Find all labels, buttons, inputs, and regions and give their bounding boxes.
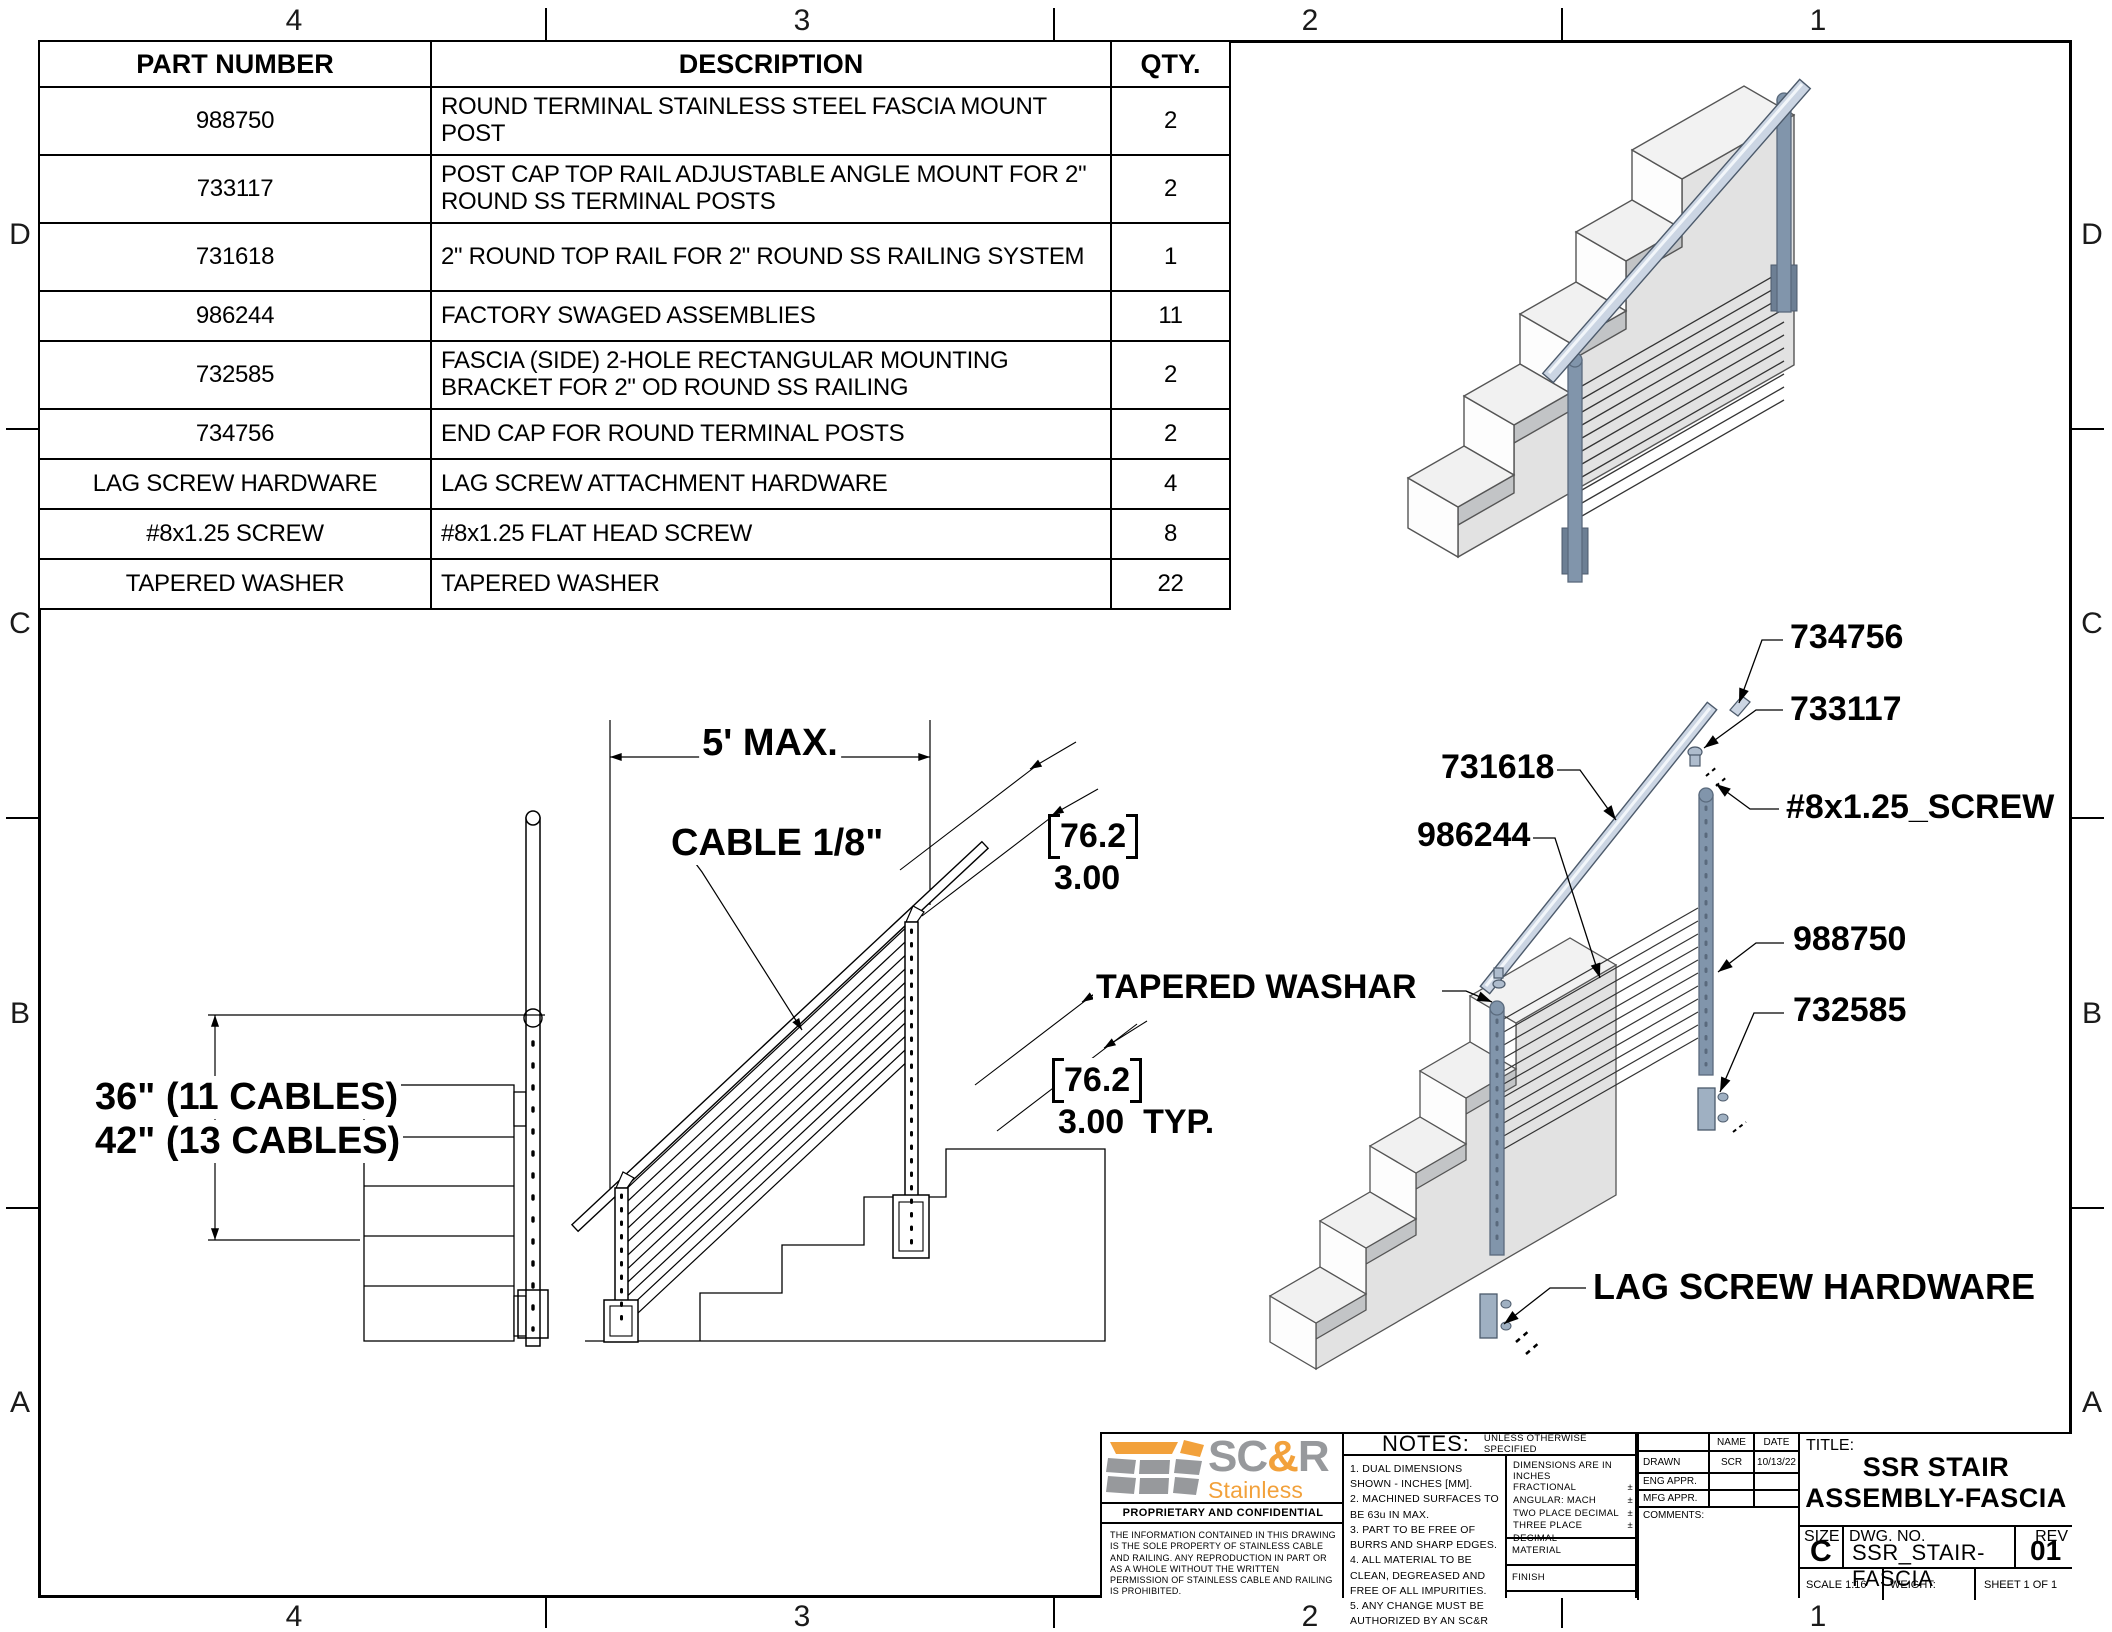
zone-tick (2072, 428, 2104, 430)
callout-screw: #8x1.25_SCREW (1783, 788, 2057, 827)
qty-cell: 2 (1111, 409, 1230, 459)
zone-letter-right-A: A (2082, 1386, 2102, 1420)
drawn-date: 10/13/22 (1757, 1457, 1796, 1468)
span-dim-text: 5' MAX. (699, 722, 841, 765)
description-cell: ROUND TERMINAL STAINLESS STEEL FASCIA MO… (431, 87, 1111, 155)
zone-number-bottom-2: 2 (1302, 1600, 1319, 1632)
drawing-sheet: 4 3 2 1 4 3 2 1 D C B A D C B A PART NUM… (0, 0, 2112, 1632)
qty-cell: 2 (1111, 87, 1230, 155)
callout-end-cap: 734756 (1787, 618, 1906, 657)
size-cell: SIZE C (1800, 1527, 1842, 1567)
qty-cell: 4 (1111, 459, 1230, 509)
zone-letter-right-D: D (2081, 218, 2103, 252)
description-cell: TAPERED WASHER (431, 559, 1111, 609)
zone-tick (6, 817, 38, 819)
zone-number-top-4: 4 (286, 4, 303, 38)
finish-label: FINISH (1512, 1572, 1545, 1583)
plus-minus: ± (1627, 1495, 1633, 1508)
stair-elevation-view (430, 690, 1240, 1380)
table-row: 986244 FACTORY SWAGED ASSEMBLIES 11 (39, 291, 1230, 341)
part-number-cell: LAG SCREW HARDWARE (39, 459, 431, 509)
zone-letter-right-C: C (2081, 607, 2103, 641)
col-header-qty: QTY. (1111, 41, 1230, 87)
notes-list: 1. DUAL DIMENSIONS SHOWN - INCHES [MM]. … (1344, 1456, 1505, 1598)
mfg-appr-label: MFG APPR. (1643, 1493, 1697, 1504)
stair-profile (585, 1149, 1105, 1341)
rev-cell: REV 01 (2014, 1527, 2074, 1567)
note-item: 3. PART TO BE FREE OF BURRS AND SHARP ED… (1350, 1523, 1501, 1553)
table-row: 733117 POST CAP TOP RAIL ADJUSTABLE ANGL… (39, 155, 1230, 223)
callout-tapered-washer: TAPERED WASHAR (1093, 968, 1420, 1007)
table-row: 988750 ROUND TERMINAL STAINLESS STEEL FA… (39, 87, 1230, 155)
drawing-title-line2: ASSEMBLY-FASCIA (1800, 1483, 2072, 1514)
drawing-title-line1: SSR STAIR (1800, 1452, 2072, 1483)
top-rail-elevation (572, 842, 988, 1232)
part-number-cell: 734756 (39, 409, 431, 459)
parts-table: PART NUMBER DESCRIPTION QTY. 988750 ROUN… (38, 40, 1231, 610)
dim-inch-value: 3.00 (1048, 859, 1138, 898)
callout-post: 988750 (1790, 920, 1909, 959)
table-row: 731618 2" ROUND TOP RAIL FOR 2" ROUND SS… (39, 223, 1230, 291)
notes-heading: NOTES: (1382, 1431, 1470, 1457)
finish-cell: FINISH (1507, 1564, 1637, 1590)
callout-cable-assembly: 986244 (1414, 816, 1533, 855)
material-label: MATERIAL (1512, 1545, 1561, 1556)
zone-tick (1053, 1596, 1055, 1628)
dim-mm-value: 76.2 (1052, 1058, 1142, 1103)
part-number-cell: 986244 (39, 291, 431, 341)
scale-value: SCALE 1:16 (1806, 1579, 1867, 1591)
approvals-grid: NAME DATE DRAWN SCR 10/13/22 ENG APPR. M… (1637, 1432, 1798, 1598)
description-cell: 2" ROUND TOP RAIL FOR 2" ROUND SS RAILIN… (431, 223, 1111, 291)
proprietary-cell: PROPRIETARY AND CONFIDENTIAL (1100, 1502, 1344, 1524)
tolerance-heading: DIMENSIONS ARE IN INCHES (1513, 1460, 1633, 1482)
legal-cell: THE INFORMATION CONTAINED IN THIS DRAWIN… (1100, 1522, 1344, 1598)
weight-label: WEIGHT: (1890, 1579, 1936, 1591)
comments-label: COMMENTS: (1643, 1510, 1704, 1521)
description-cell: FASCIA (SIDE) 2-HOLE RECTANGULAR MOUNTIN… (431, 341, 1111, 409)
zone-tick (6, 428, 38, 430)
zone-tick (545, 8, 547, 40)
zone-number-top-1: 1 (1810, 4, 1827, 38)
material-cell: MATERIAL (1507, 1537, 1637, 1564)
part-number-cell: 988750 (39, 87, 431, 155)
callout-top-rail: 731618 (1438, 748, 1557, 787)
note-item: 5. ANY CHANGE MUST BE AUTHORIZED BY AN S… (1350, 1599, 1501, 1632)
zone-letter-left-C: C (9, 607, 31, 641)
elevation-posts (604, 906, 929, 1342)
dim-mm-value: 76.2 (1048, 814, 1138, 859)
cable-size-label: CABLE 1/8" (668, 822, 886, 865)
description-cell: #8x1.25 FLAT HEAD SCREW (431, 509, 1111, 559)
span-dimension (610, 720, 930, 1190)
drawn-name: SCR (1721, 1457, 1742, 1468)
zone-number-bottom-4: 4 (286, 1600, 303, 1632)
brand-r: R (1298, 1432, 1329, 1481)
scale-cell: SCALE 1:16 (1800, 1569, 1882, 1600)
qty-cell: 11 (1111, 291, 1230, 341)
notes-cell: NOTES: UNLESS OTHERWISE SPECIFIED 1. DUA… (1342, 1432, 1637, 1598)
part-number-cell: TAPERED WASHER (39, 559, 431, 609)
table-row: #8x1.25 SCREW #8x1.25 FLAT HEAD SCREW 8 (39, 509, 1230, 559)
logo-cell: SC&R Stainless Cable & Railing (1100, 1432, 1344, 1504)
description-cell: FACTORY SWAGED ASSEMBLIES (431, 291, 1111, 341)
cable-count-dim-36: 36" (11 CABLES) (92, 1076, 401, 1119)
notes-qualifier: UNLESS OTHERWISE SPECIFIED (1484, 1433, 1635, 1455)
note-item: 1. DUAL DIMENSIONS SHOWN - INCHES [MM]. (1350, 1462, 1501, 1492)
isometric-assembly-view (1290, 60, 1930, 630)
dwg-no-cell: DWG. NO. SSR_STAIR-FASCIA (1842, 1527, 2014, 1567)
note-item: 4. ALL MATERIAL TO BE CLEAN, DEGREASED A… (1350, 1553, 1501, 1599)
zone-tick (6, 1207, 38, 1209)
brand-sc: SC (1208, 1432, 1267, 1481)
date-header: DATE (1764, 1437, 1790, 1448)
plus-minus: ± (1627, 1482, 1633, 1495)
table-row: TAPERED WASHER TAPERED WASHER 22 (39, 559, 1230, 609)
col-header-description: DESCRIPTION (431, 41, 1111, 87)
qty-cell: 8 (1111, 509, 1230, 559)
rev-value: 01 (2030, 1535, 2061, 1567)
zone-letter-left-D: D (9, 218, 31, 252)
tol-label: FRACTIONAL (1513, 1482, 1576, 1495)
zone-letter-left-B: B (10, 997, 30, 1031)
size-value: C (1810, 1535, 1832, 1569)
description-cell: LAG SCREW ATTACHMENT HARDWARE (431, 459, 1111, 509)
part-number-cell: 731618 (39, 223, 431, 291)
zone-tick (1561, 8, 1563, 40)
table-row: LAG SCREW HARDWARE LAG SCREW ATTACHMENT … (39, 459, 1230, 509)
eng-appr-label: ENG APPR. (1643, 1476, 1697, 1487)
part-number-cell: 733117 (39, 155, 431, 223)
zone-number-bottom-3: 3 (794, 1600, 811, 1632)
cable-count-dim-42: 42" (13 CABLES) (92, 1120, 403, 1163)
zone-tick (1561, 1596, 1563, 1628)
col-header-part-number: PART NUMBER (39, 41, 431, 87)
legal-text: THE INFORMATION CONTAINED IN THIS DRAWIN… (1110, 1530, 1336, 1596)
title-area: TITLE: SSR STAIR ASSEMBLY-FASCIA SIZE C … (1798, 1432, 2072, 1598)
part-number-cell: #8x1.25 SCREW (39, 509, 431, 559)
description-cell: END CAP FOR ROUND TERMINAL POSTS (431, 409, 1111, 459)
description-cell: POST CAP TOP RAIL ADJUSTABLE ANGLE MOUNT… (431, 155, 1111, 223)
empty-cell (1507, 1590, 1637, 1600)
cable-lines (622, 923, 911, 1328)
sheet-cell: SHEET 1 OF 1 (1974, 1569, 2074, 1600)
cable-leader (678, 840, 802, 1030)
drawn-label: DRAWN (1643, 1457, 1680, 1468)
zone-letter-right-B: B (2082, 997, 2102, 1031)
parts-table-header-row: PART NUMBER DESCRIPTION QTY. (39, 41, 1230, 87)
note-item: 2. MACHINED SURFACES TO BE 63u IN MAX. (1350, 1492, 1501, 1522)
callout-post-cap: 733117 (1787, 690, 1905, 729)
zone-letter-left-A: A (10, 1386, 30, 1420)
plus-minus: ± (1627, 1508, 1633, 1521)
qty-cell: 1 (1111, 223, 1230, 291)
name-header: NAME (1717, 1437, 1746, 1448)
weight-cell: WEIGHT: (1882, 1569, 1974, 1600)
callout-bracket: 732585 (1790, 991, 1909, 1030)
table-row: 732585 FASCIA (SIDE) 2-HOLE RECTANGULAR … (39, 341, 1230, 409)
zone-tick (545, 1596, 547, 1628)
sheet-value: SHEET 1 OF 1 (1984, 1579, 2057, 1591)
qty-cell: 2 (1111, 341, 1230, 409)
brand-amp: & (1267, 1432, 1298, 1481)
zone-tick (1053, 8, 1055, 40)
tol-label: ANGULAR: MACH (1513, 1495, 1596, 1508)
tolerance-column: DIMENSIONS ARE IN INCHES FRACTIONAL± ANG… (1505, 1456, 1637, 1598)
zone-number-top-3: 3 (794, 4, 811, 38)
part-number-cell: 732585 (39, 341, 431, 409)
scr-logo-graphic (1106, 1438, 1206, 1498)
offset-dim-upper-text: 76.2 3.00 (1048, 814, 1138, 898)
qty-cell: 2 (1111, 155, 1230, 223)
table-row: 734756 END CAP FOR ROUND TERMINAL POSTS … (39, 409, 1230, 459)
zone-number-top-2: 2 (1302, 4, 1319, 38)
tol-label: TWO PLACE DECIMAL (1513, 1508, 1619, 1521)
zone-number-bottom-1: 1 (1810, 1600, 1827, 1632)
callout-lag-screw-hardware: LAG SCREW HARDWARE (1590, 1266, 2038, 1308)
proprietary-heading: PROPRIETARY AND CONFIDENTIAL (1123, 1507, 1324, 1519)
